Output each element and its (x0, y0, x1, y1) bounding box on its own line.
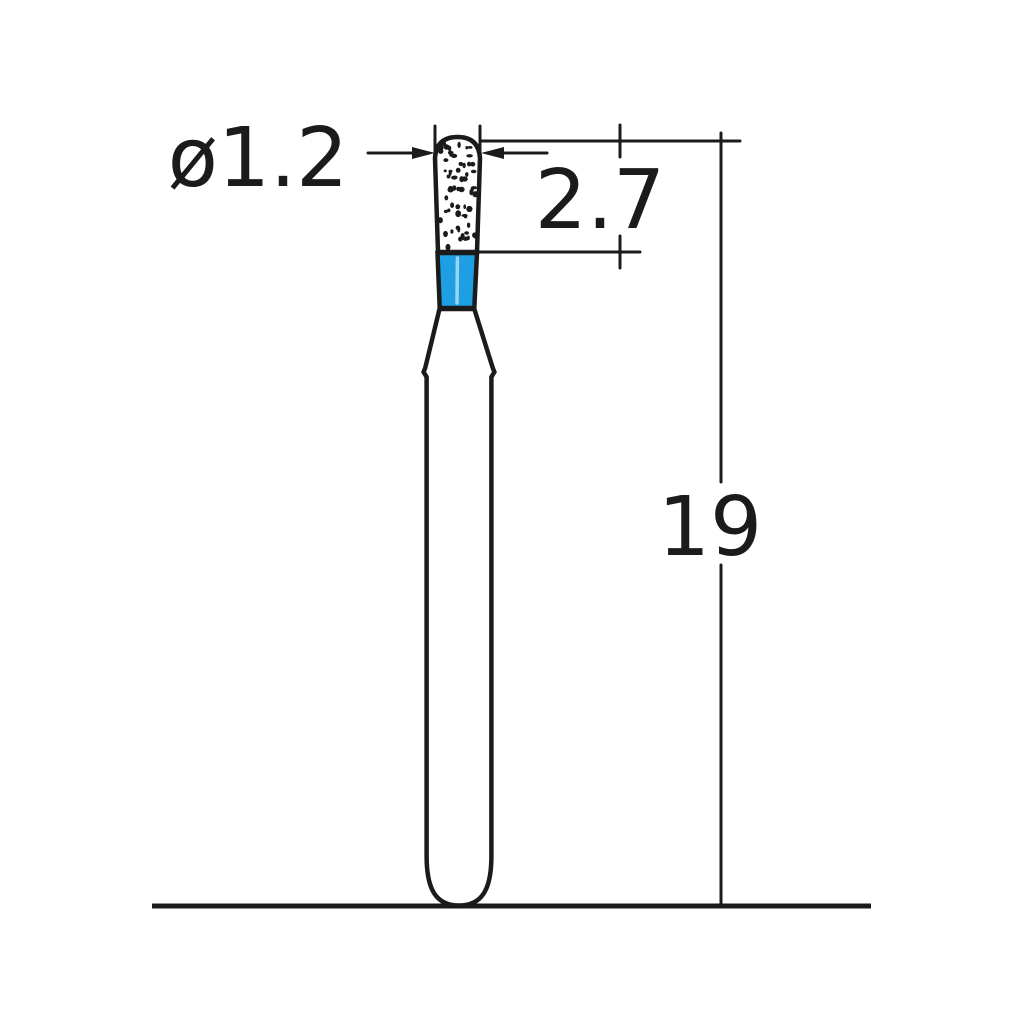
grit-dot (457, 226, 460, 233)
grit-dot (446, 244, 451, 251)
grit-dot (443, 231, 448, 237)
arrow-right-icon (368, 147, 435, 159)
grit-dot (449, 154, 453, 157)
grit-dot (455, 210, 461, 217)
grit-dot (455, 204, 460, 209)
grit-dot (448, 186, 453, 192)
grit-dot (459, 162, 464, 166)
dimension-label-total-length: 19 (630, 479, 790, 575)
grit-dot (457, 142, 460, 148)
grit-dot (463, 237, 469, 241)
grit-dot (471, 170, 477, 173)
grit-dot (447, 175, 451, 179)
grit-dot (450, 229, 453, 233)
diagram-canvas: ø1.2 2.7 19 (0, 0, 1024, 1024)
grit-dot (466, 154, 473, 157)
grit-dot (467, 162, 471, 167)
bur-shank (424, 309, 495, 906)
grit-dot (444, 144, 450, 150)
grit-dot (472, 232, 477, 238)
grit-dot (438, 217, 443, 223)
grit-dot (468, 146, 473, 149)
grit-dot (465, 146, 468, 149)
dimension-label-head-length: 2.7 (518, 152, 682, 248)
grit-dot (466, 206, 472, 212)
bur-diagram (0, 0, 1024, 1024)
grit-dot (464, 214, 468, 218)
grit-dot (463, 204, 466, 209)
grit-dot (443, 158, 448, 162)
dimension-label-head-diameter: ø1.2 (158, 110, 358, 206)
grit-dot (438, 148, 443, 154)
grit-dot (467, 223, 470, 228)
grit-dot (465, 172, 468, 177)
grit-dot (449, 170, 453, 173)
grit-dot (444, 210, 448, 213)
grit-dot (464, 231, 469, 234)
grit-dot (450, 202, 454, 208)
grit-dot (456, 168, 461, 173)
grit-dot (471, 187, 474, 192)
grit-dot (444, 170, 447, 173)
grit-dot (461, 176, 468, 181)
grit-dot (453, 176, 457, 179)
grit-dot (444, 195, 448, 200)
grit-dot (456, 187, 461, 192)
